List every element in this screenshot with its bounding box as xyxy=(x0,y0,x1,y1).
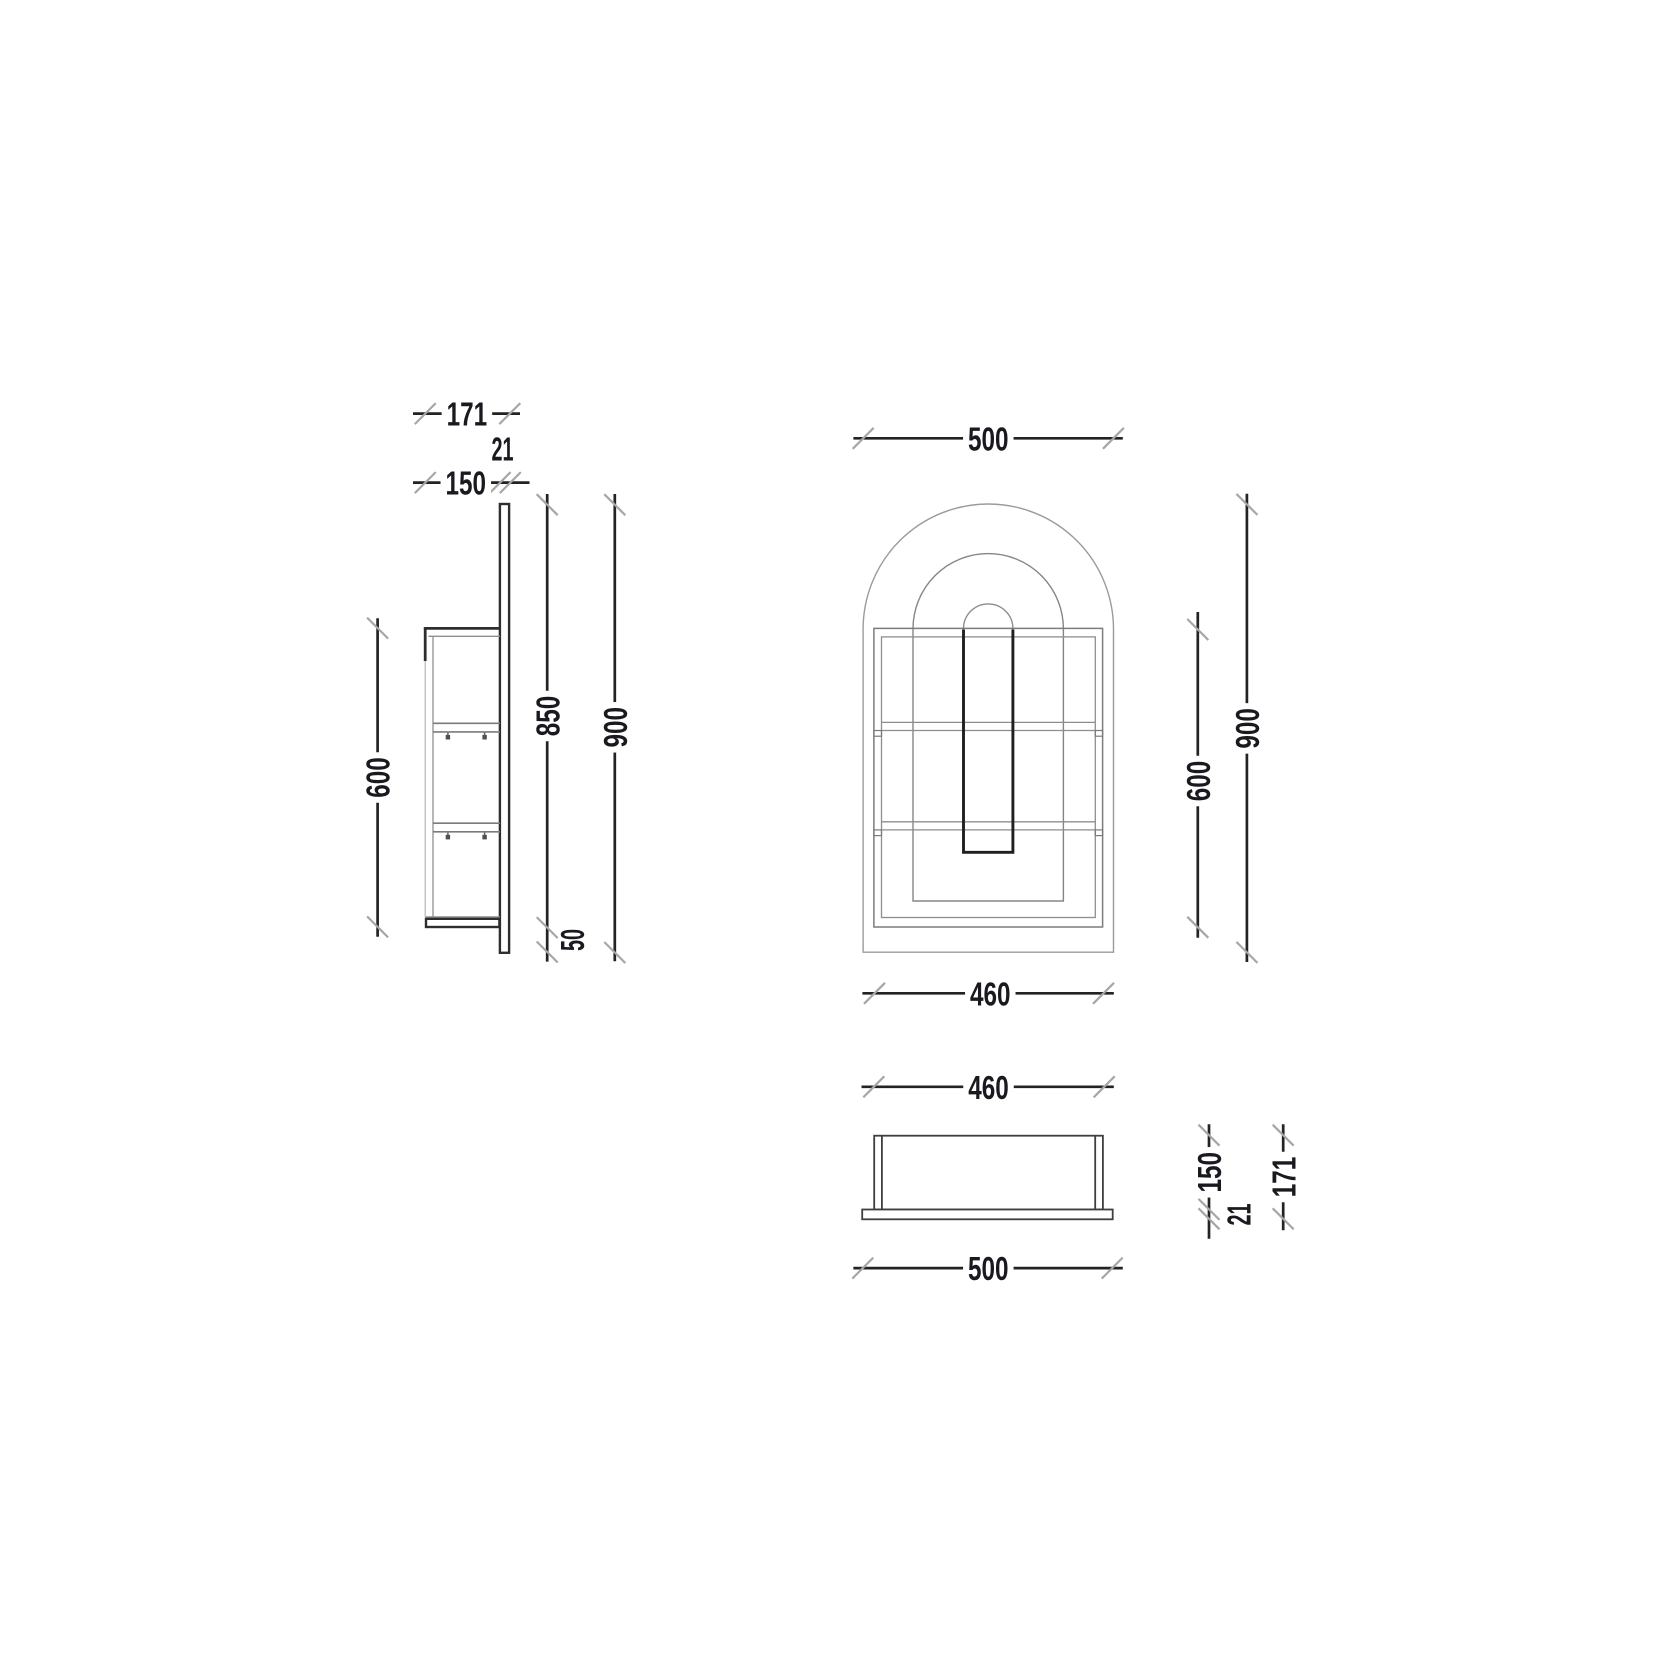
svg-text:850: 850 xyxy=(531,696,568,737)
svg-text:900: 900 xyxy=(1230,708,1267,749)
svg-text:600: 600 xyxy=(361,757,398,798)
svg-text:500: 500 xyxy=(968,422,1009,459)
svg-text:460: 460 xyxy=(968,1070,1009,1107)
svg-text:171: 171 xyxy=(1267,1157,1304,1198)
svg-text:21: 21 xyxy=(1220,1203,1258,1225)
svg-text:21: 21 xyxy=(491,430,513,468)
svg-text:150: 150 xyxy=(1192,1152,1229,1193)
svg-text:600: 600 xyxy=(1181,761,1218,802)
svg-text:150: 150 xyxy=(446,466,487,503)
svg-text:50: 50 xyxy=(553,929,591,951)
svg-text:171: 171 xyxy=(447,397,488,434)
svg-text:460: 460 xyxy=(970,977,1011,1014)
svg-text:500: 500 xyxy=(968,1252,1009,1289)
svg-text:900: 900 xyxy=(598,707,635,748)
